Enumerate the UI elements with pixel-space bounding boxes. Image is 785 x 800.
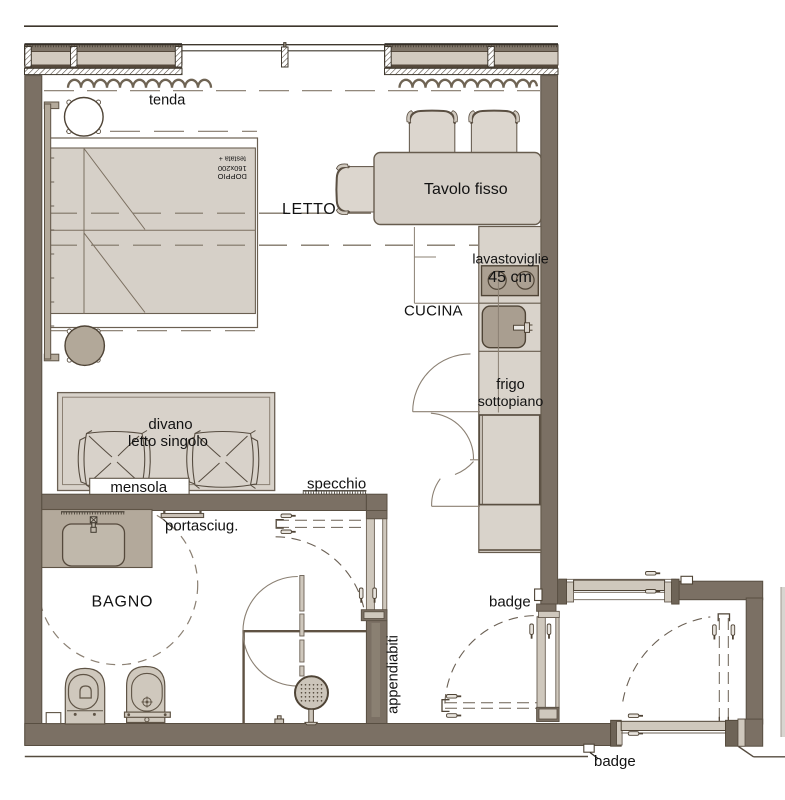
- svg-text:45 cm: 45 cm: [488, 269, 532, 286]
- svg-text:badge: badge: [594, 753, 636, 770]
- svg-text:Tavolo fisso: Tavolo fisso: [424, 181, 508, 198]
- svg-text:tenda: tenda: [149, 93, 186, 109]
- svg-text:divano: divano: [148, 416, 192, 433]
- svg-text:lavastoviglie: lavastoviglie: [472, 251, 548, 267]
- svg-text:BAGNO: BAGNO: [92, 594, 154, 611]
- svg-text:frigo: frigo: [496, 377, 524, 393]
- svg-text:160x200: 160x200: [218, 164, 247, 173]
- svg-text:specchio: specchio: [307, 476, 366, 493]
- svg-text:portasciug.: portasciug.: [165, 518, 238, 535]
- svg-text:LETTO: LETTO: [282, 201, 336, 218]
- svg-text:letto singolo: letto singolo: [128, 433, 208, 450]
- svg-text:badge: badge: [489, 594, 531, 611]
- svg-text:appendiabiti: appendiabiti: [386, 635, 402, 714]
- svg-text:mensola: mensola: [110, 479, 167, 496]
- svg-text:testata +: testata +: [219, 154, 246, 161]
- svg-text:CUCINA: CUCINA: [404, 303, 463, 320]
- svg-text:sottopiano: sottopiano: [478, 394, 544, 410]
